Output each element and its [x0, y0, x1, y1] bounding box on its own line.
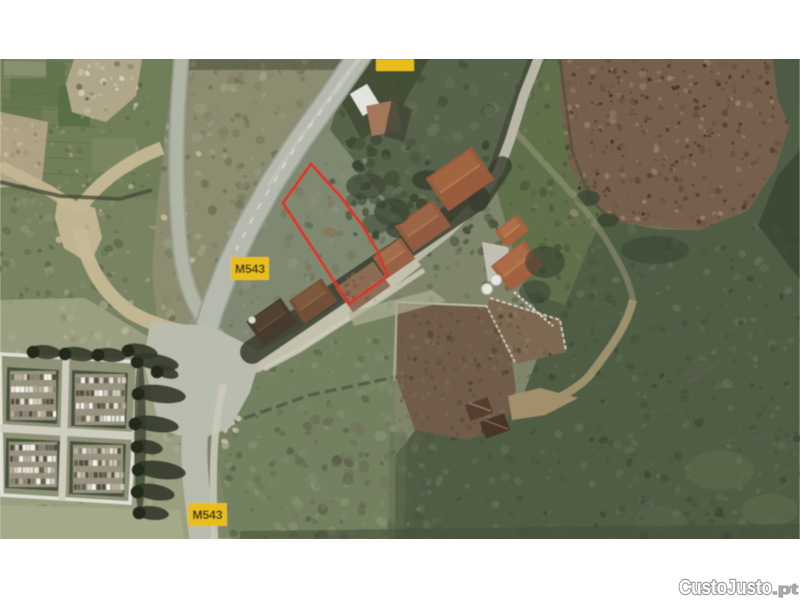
svg-text:.pt: .pt: [772, 581, 798, 598]
svg-text:CustoJusto: CustoJusto: [679, 577, 772, 599]
